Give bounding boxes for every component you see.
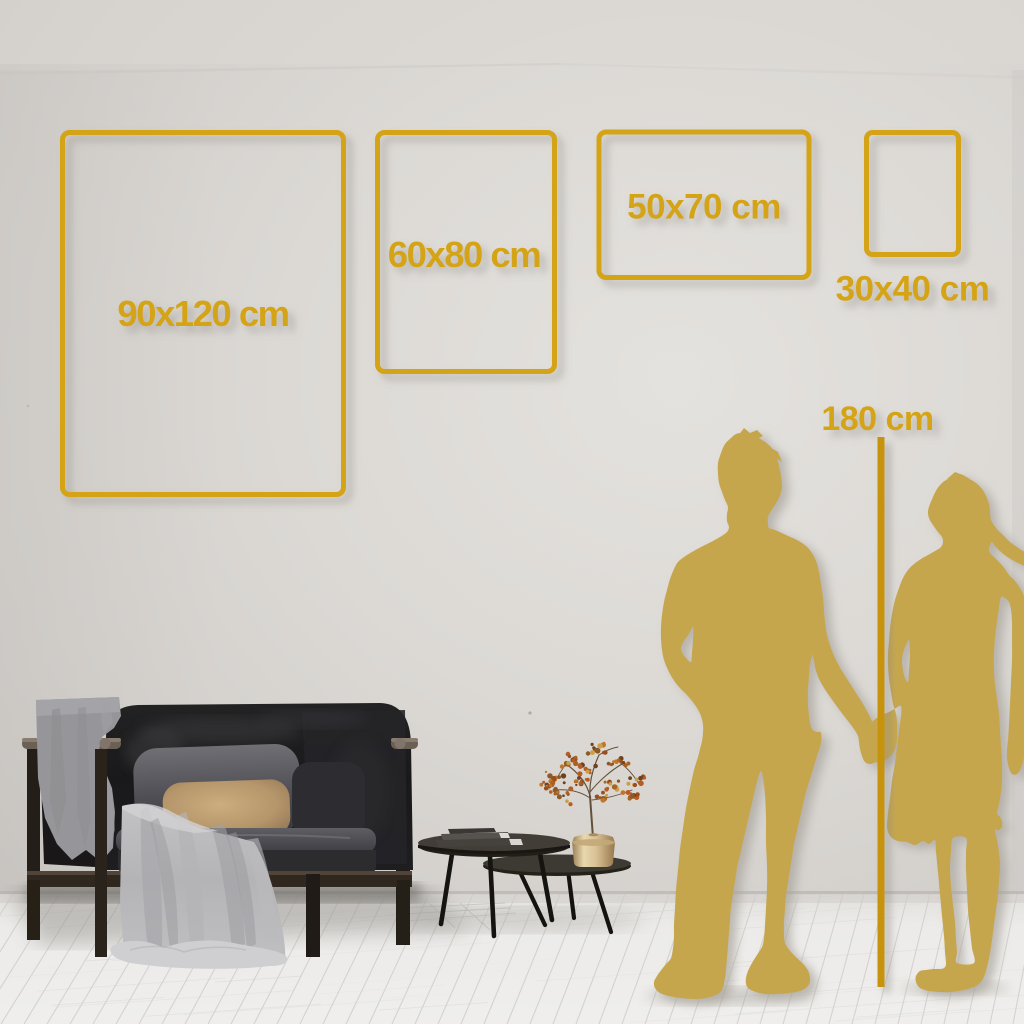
svg-text:50x70 cm: 50x70 cm [627,188,781,227]
svg-text:60x80 cm: 60x80 cm [388,234,540,275]
svg-text:180 cm: 180 cm [821,400,933,438]
svg-text:30x40 cm: 30x40 cm [836,270,990,309]
svg-text:90x120 cm: 90x120 cm [117,293,288,334]
